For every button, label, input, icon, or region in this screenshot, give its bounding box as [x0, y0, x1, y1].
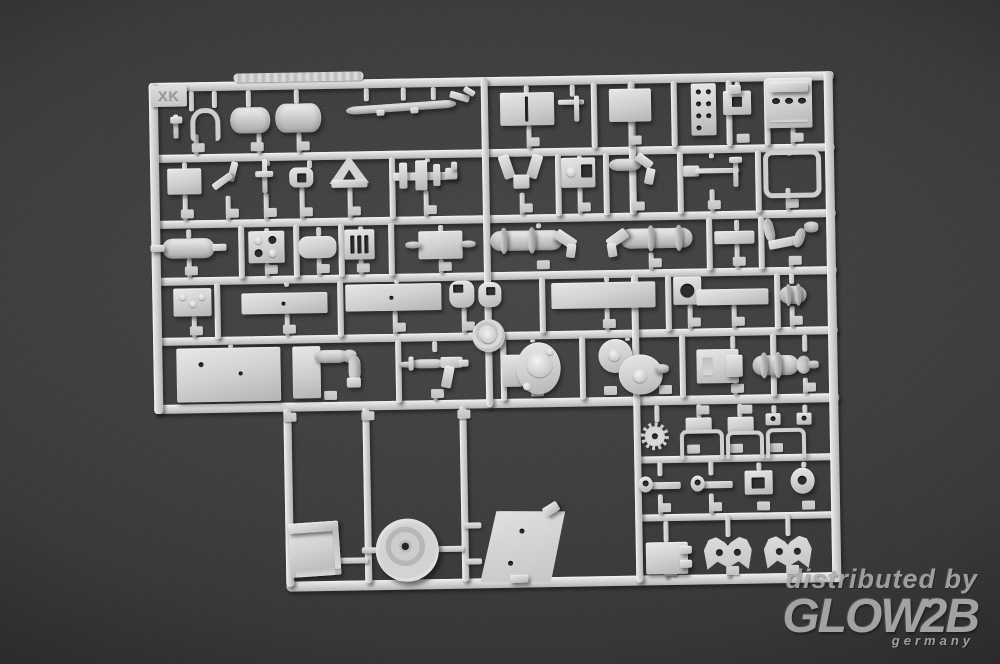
part-detail [716, 549, 723, 556]
part-hatch-plate [500, 92, 555, 126]
sprue-rail [591, 82, 598, 148]
part-detail [696, 89, 701, 94]
part-detail [675, 225, 682, 251]
part-ribbed-cylinder [752, 351, 816, 378]
watermark-brand-logo: GLOW2B [782, 595, 978, 638]
part-detail [696, 125, 701, 130]
part-tee-fitting [255, 159, 274, 193]
part-mg-mount [393, 160, 458, 191]
part-gear-box [696, 349, 739, 384]
sprue-gate [708, 461, 713, 475]
part-detail [558, 99, 584, 104]
part-detail [647, 225, 654, 251]
part-number-tag [439, 262, 452, 271]
part-number-tag [181, 209, 194, 218]
part-detail [254, 236, 262, 244]
part-detail [785, 284, 791, 306]
part-drive-sprocket [641, 422, 669, 450]
sprue-gate [186, 229, 191, 238]
part-detail [350, 236, 354, 254]
part-detail [170, 117, 182, 124]
part-detail [346, 99, 456, 115]
part-submachine-gun [398, 352, 469, 391]
sprue-gate [789, 273, 794, 284]
part-perforated-plate [691, 83, 717, 135]
part-detail [297, 173, 306, 182]
part-detail [680, 284, 694, 298]
sprue-gate [189, 91, 194, 111]
part-grab-handle [766, 428, 807, 459]
part-beam [345, 283, 441, 312]
sprue-rail [539, 277, 546, 333]
sprue-id-tag: XK [151, 85, 187, 107]
part-detail [706, 89, 711, 94]
sprue-gate [657, 462, 662, 476]
part-number-tag [709, 502, 722, 511]
part-detail [451, 162, 457, 170]
part-detail [702, 357, 712, 375]
sprue-gate [734, 220, 739, 231]
part-number-tag [802, 501, 815, 510]
part-detail [566, 167, 576, 177]
sprue-gate [294, 89, 299, 103]
part-grab-handle [680, 429, 725, 460]
part-detail [268, 236, 276, 244]
part-pump-housing [502, 342, 561, 397]
sprue-gate [432, 341, 437, 352]
part-number-tag [300, 207, 313, 216]
part-knuckle [478, 282, 501, 307]
part-detail [479, 510, 566, 583]
part-number-tag [348, 206, 361, 215]
sprue-gate [246, 90, 251, 107]
part-detail [441, 365, 455, 389]
part-number-tag [297, 141, 310, 150]
part-detail [295, 567, 335, 578]
part-detail [269, 249, 277, 257]
part-equipment-box [766, 78, 813, 129]
part-detail [410, 107, 418, 114]
part-detail [566, 243, 577, 258]
part-detail [528, 227, 535, 253]
part-detail [376, 109, 384, 116]
part-number-tag [520, 203, 533, 212]
part-road-wheel [375, 518, 439, 582]
part-air-duct [292, 345, 363, 398]
sprue-rail [755, 150, 762, 212]
part-detail [809, 360, 819, 368]
part-detail [481, 328, 496, 343]
part-detail [212, 244, 226, 251]
part-detail [574, 96, 579, 122]
part-number-tag [185, 266, 198, 275]
part-number-tag [708, 200, 721, 209]
part-number-tag [658, 503, 671, 512]
part-detail [546, 348, 553, 355]
sprue-rail [671, 81, 678, 147]
part-junction-box [646, 542, 689, 575]
sprue-gate [771, 405, 776, 413]
sprue-gate [364, 88, 369, 101]
watermark-country: germany [782, 633, 978, 648]
part-detail [734, 549, 741, 556]
part-clip-sm [796, 413, 811, 425]
part-detail [458, 360, 468, 367]
part-stowage-box [167, 168, 201, 195]
part-detail [150, 245, 164, 252]
part-detail [795, 284, 801, 306]
part-twin-housing [596, 338, 663, 395]
part-grab-handle [726, 430, 764, 459]
part-stowage-bin [288, 521, 342, 578]
part-bracket-port [744, 470, 772, 494]
part-detail [255, 249, 263, 257]
part-exhaust-pipe [490, 226, 585, 262]
part-number-tag [283, 413, 296, 422]
sprue-gate [756, 462, 761, 470]
part-number-tag [317, 264, 330, 273]
part-detail [776, 548, 783, 555]
sprue-gate [663, 521, 668, 542]
part-detail [772, 98, 780, 104]
part-detail [525, 96, 528, 121]
part-number-tag [732, 317, 745, 326]
part-number-tag [739, 405, 752, 414]
part-number-tag [226, 209, 239, 218]
part-number-tag [791, 133, 804, 142]
part-detail [255, 171, 273, 177]
part-exhaust-pipe [598, 224, 693, 260]
sprue-gate [730, 336, 735, 349]
part-number-tag [431, 389, 444, 398]
part-flat-bar [714, 231, 754, 245]
part-detail [239, 371, 243, 375]
part-detail [399, 163, 407, 189]
part-detail [410, 359, 444, 369]
part-detail [729, 157, 742, 163]
sprue-rail [388, 223, 395, 276]
part-number-tag [578, 202, 591, 211]
part-number-tag [731, 384, 744, 393]
part-detail [804, 221, 818, 232]
sprue-rail [665, 275, 672, 331]
part-detail [752, 477, 765, 488]
part-pin-bracket [558, 95, 584, 123]
part-number-tag [733, 257, 746, 266]
part-number-tag [251, 142, 264, 151]
part-detail [408, 357, 413, 371]
part-detail [732, 97, 742, 107]
part-detail [696, 101, 701, 106]
part-number-tag [357, 263, 370, 272]
part-detail [389, 296, 393, 300]
part-detail [798, 98, 806, 104]
part-detail [179, 293, 186, 300]
part-detail [453, 285, 463, 293]
part-detail [519, 529, 524, 534]
part-frame-hoop [763, 149, 822, 198]
sprue-frame: XK [145, 61, 854, 603]
part-number-tag [527, 137, 540, 146]
sprue-gate [802, 335, 807, 352]
part-number-tag [361, 411, 374, 420]
product-photo: XK distributed by GLOW2B germany [0, 0, 1000, 664]
part-number-tag [283, 325, 296, 334]
part-hose-fitting [609, 150, 656, 191]
part-detail [460, 240, 475, 247]
part-detail [405, 241, 420, 248]
part-detail [771, 416, 776, 421]
sprue-gate [212, 91, 217, 108]
watermark: distributed by GLOW2B germany [782, 564, 978, 648]
part-bent-lever [211, 162, 240, 196]
part-number-tag [629, 135, 642, 144]
part-number-tag [190, 326, 203, 335]
part-number-tag [603, 319, 616, 328]
part-detail [510, 575, 528, 583]
part-detail [680, 546, 692, 554]
part-number-tag [632, 201, 645, 210]
part-detail [770, 118, 808, 123]
part-detail [774, 352, 781, 378]
part-number-tag [265, 265, 278, 274]
part-panel [241, 292, 327, 314]
part-detail [770, 82, 808, 93]
part-detail [680, 560, 692, 568]
part-shackle-hook [190, 108, 221, 142]
part-detail [513, 174, 529, 188]
part-detail [364, 235, 368, 253]
sprue-gate [340, 557, 368, 563]
part-foot-clip [170, 115, 182, 139]
part-number-tag [696, 405, 709, 414]
brand-suffix: 2B [921, 595, 978, 638]
sprue-rail [238, 225, 245, 278]
sprue-gate [785, 514, 790, 536]
sprue-gate [802, 405, 807, 413]
part-detail [643, 480, 649, 486]
part-detail [523, 382, 531, 390]
part-detail [357, 235, 361, 253]
part-detail [726, 355, 742, 377]
part-bolt-plate [173, 288, 211, 317]
sprue-gate [401, 88, 406, 101]
part-number-tag [757, 501, 770, 510]
part-tow-shackle [329, 155, 370, 188]
part-number-tag [688, 317, 701, 326]
part-detail [288, 521, 339, 534]
sprue-gate [284, 282, 289, 287]
part-number-tag [790, 316, 803, 325]
part-hose-elbow [762, 217, 817, 258]
part-clip-sm [765, 413, 780, 425]
part-drum [275, 103, 321, 133]
part-control-lever [639, 476, 681, 495]
sprue-rail [214, 283, 221, 339]
part-signal-arm [683, 157, 744, 190]
part-number-tag [393, 323, 406, 332]
part-detail [644, 168, 656, 185]
part-detail [655, 364, 669, 373]
part-detail [779, 286, 806, 304]
sprue-rail [706, 217, 713, 270]
sprue-rail [337, 281, 344, 337]
sprue-gate [654, 405, 659, 422]
part-number-tag [537, 260, 550, 269]
part-floor-plate [176, 347, 281, 403]
part-axle-box [418, 231, 462, 260]
part-control-lever [691, 475, 733, 494]
part-detail [652, 433, 658, 439]
part-drum [230, 107, 270, 134]
part-number-tag [737, 134, 750, 143]
part-clamp-block [723, 91, 751, 115]
part-detail [189, 300, 196, 307]
part-detail [794, 548, 801, 555]
part-detail [508, 561, 513, 566]
part-strip [696, 288, 768, 305]
sprue-id-label: XK [158, 88, 180, 104]
sprue-rail [679, 335, 686, 398]
part-number-tag [457, 410, 470, 419]
part-detail [706, 101, 711, 106]
part-number-tag [786, 199, 799, 208]
part-detail [486, 287, 495, 295]
part-detail [802, 416, 807, 421]
part-detail [332, 529, 341, 569]
part-detail [785, 98, 793, 104]
part-valve-block [248, 231, 285, 264]
part-mirror-arms [499, 154, 544, 193]
part-detail [607, 242, 618, 257]
part-number-tag [192, 143, 205, 152]
part-mount-pad [298, 236, 336, 259]
part-detail [798, 476, 807, 485]
part-muffler [162, 238, 214, 259]
part-detail [695, 480, 701, 486]
part-number-tag [803, 382, 816, 391]
part-plate [609, 88, 652, 122]
part-detail [581, 164, 592, 177]
part-knuckle [449, 280, 474, 307]
part-detail [198, 362, 203, 367]
part-number-tag [264, 208, 277, 217]
part-number-tag [649, 258, 662, 267]
sprue-gate [725, 515, 730, 537]
part-beam [551, 281, 655, 309]
part-detail [706, 113, 711, 118]
part-detail [729, 85, 741, 94]
part-engine-mount [704, 537, 753, 572]
part-detail [331, 179, 367, 188]
part-detail [415, 160, 428, 190]
sprue-rail [579, 337, 586, 400]
part-detail [500, 228, 507, 254]
sprue-rail [635, 511, 836, 522]
part-detail [696, 113, 701, 118]
part-detail [433, 164, 440, 186]
part-detail [281, 302, 285, 306]
part-knob [790, 468, 814, 494]
part-vent-grille [344, 229, 375, 260]
sprue-gate [316, 227, 321, 236]
part-detail [198, 293, 205, 300]
part-number-tag [424, 205, 437, 214]
part-buckle [289, 167, 313, 187]
sprue-rail [459, 406, 469, 582]
part-detail [760, 352, 767, 378]
part-fender [479, 504, 570, 584]
part-detail [347, 377, 361, 387]
part-periscope-box [561, 157, 596, 188]
part-bushing [779, 284, 806, 306]
sprue-gate [437, 546, 464, 552]
